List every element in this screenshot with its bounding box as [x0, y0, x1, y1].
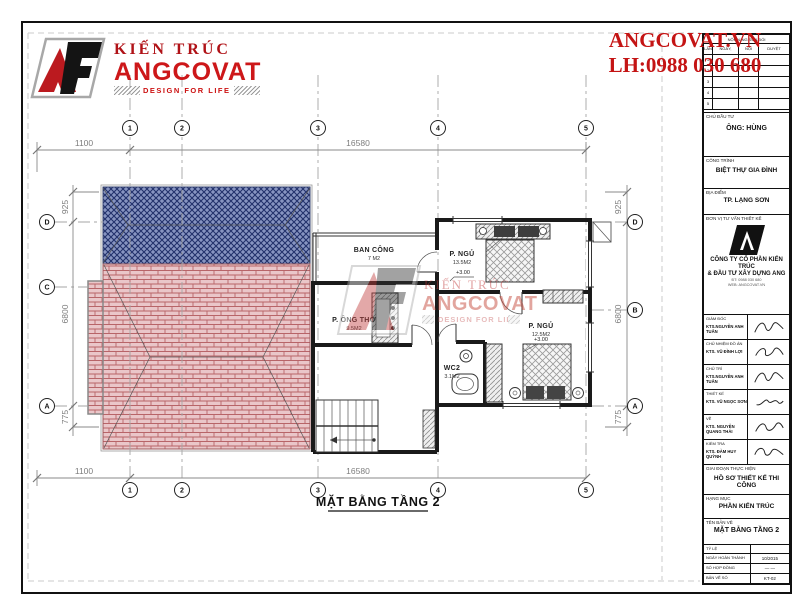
date-label: NGÀY HOÀN THÀNH — [704, 554, 751, 563]
logo-name: ANGCOVAT — [114, 59, 261, 85]
dim-bottom-left: 1100 — [75, 466, 94, 476]
project-section: CÔNG TRÌNH BIỆT THỰ GIA ĐÌNH — [704, 157, 789, 189]
room-bed1-name: P. NGỦ — [449, 249, 474, 258]
stage-section: GIAI ĐOẠN THỰC HIỆN HỒ SƠ THIẾT KẾ THI C… — [704, 465, 789, 495]
grid-col-2: 2 — [180, 126, 184, 133]
dimension-top: 1100 16580 — [33, 138, 590, 172]
contract-label: SỐ HỢP ĐỒNG — [704, 564, 751, 573]
wardrobe-top — [476, 224, 550, 239]
dim-left-mid: 6800 — [60, 304, 70, 323]
sig-name: KTS. NGUYỄN QUANG THÁI — [706, 424, 747, 434]
dim-top-left: 1100 — [75, 138, 94, 148]
location-value: TP. LẠNG SƠN — [704, 197, 789, 204]
dim-top-span: 16580 — [346, 138, 370, 148]
owner-value: ÔNG: HÙNG — [704, 125, 789, 132]
room-bed1-area: 13.5M2 — [453, 260, 471, 266]
signature-row-supervisor: CHỦ TRÌ KTS.NGUYỄN ANH TUẤN — [704, 365, 789, 390]
category-section: HẠNG MỤC PHẦN KIẾN TRÚC — [704, 495, 789, 519]
grid-col-2b: 2 — [180, 488, 184, 495]
room-balcony-name: BAN CÔNG — [354, 245, 395, 254]
grid-row-right-3: A — [632, 404, 637, 411]
grid-col-5b: 5 — [584, 488, 588, 495]
dim-right-top: 925 — [613, 200, 623, 214]
signature-row-checker: KIỂM TRA KTS. ĐÀM HUY QUỲNH — [704, 440, 789, 464]
watermark-line2: ANGCOVAT — [422, 293, 537, 315]
grid-row-right-1: D — [632, 220, 637, 227]
grid-row-left-3: A — [44, 404, 49, 411]
roof-blue-tiles — [103, 187, 310, 264]
angcovat-logo-icon — [30, 36, 106, 100]
drawing-label: TÊN BẢN VẼ — [704, 519, 789, 525]
date-value: 10/2015 — [751, 554, 789, 563]
project-value: BIỆT THỰ GIA ĐÌNH — [704, 167, 789, 174]
sig-role: VẼ — [706, 416, 747, 421]
ac-ledge — [593, 222, 611, 242]
room-wc-name: WC2 — [444, 365, 460, 372]
grid-bubbles-top: 1 2 3 4 5 — [123, 121, 594, 136]
consultant-section: ĐƠN VỊ TƯ VẤN THIẾT KẾ CÔNG TY CỔ PHẦN K… — [704, 215, 789, 315]
revision-row-5: 5 — [704, 99, 713, 110]
plan-title-text: MẶT BẰNG TẦNG 2 — [316, 494, 440, 509]
bed-1 — [486, 240, 534, 282]
scale-value — [751, 545, 789, 553]
grid-bubbles-left: D C A — [40, 215, 55, 414]
tagline-stripe-right — [234, 86, 260, 95]
company-logo: KIẾN TRÚC ANGCOVAT DESIGN FOR LIFE — [30, 36, 261, 100]
scale-row: TỶ LỆ — [704, 545, 789, 554]
sig-name: KTS. VŨ ĐÌNH LỢI — [706, 349, 747, 354]
bookshelf — [543, 290, 583, 303]
dim-right-bottom: 775 — [613, 410, 623, 424]
watermark-logo: KIẾN TRÚC ANGCOVAT DESIGN FOR LIFE — [338, 266, 537, 334]
roof-side-strip — [88, 281, 103, 414]
roof-plan — [88, 185, 312, 451]
revision-row-4: 4 — [704, 88, 713, 99]
bed-2 — [510, 344, 584, 400]
grid-col-3: 3 — [316, 126, 320, 133]
wardrobe-closet — [486, 344, 502, 402]
stage-value: HỒ SƠ THIẾT KẾ THI CÔNG — [704, 475, 789, 489]
sig-role: KIỂM TRA — [706, 441, 747, 446]
consultant-label: ĐƠN VỊ TƯ VẤN THIẾT KẾ — [704, 215, 789, 221]
grid-col-3b: 3 — [316, 488, 320, 495]
wc-fixtures — [452, 350, 478, 394]
signature-row-designer: THIẾT KẾ KTS. VŨ NGỌC SƠN — [704, 390, 789, 415]
location-section: ĐỊA ĐIỂM TP. LẠNG SƠN — [704, 189, 789, 215]
consultant-logo-icon — [727, 223, 767, 257]
signature-ink — [748, 390, 789, 414]
grid-col-5: 5 — [584, 126, 588, 133]
scale-label: TỶ LỆ — [704, 545, 751, 553]
sig-name: KTS.NGUYỄN ANH TUẤN — [706, 324, 747, 334]
contract-value: — — — [751, 564, 789, 573]
signature-row-drafter: VẼ KTS. NGUYỄN QUANG THÁI — [704, 415, 789, 440]
signature-rows: GIÁM ĐỐC KTS.NGUYỄN ANH TUẤN CHỦ NHIỆM Đ… — [704, 315, 789, 465]
grid-row-left-2: C — [44, 285, 49, 292]
grid-col-1: 1 — [128, 126, 132, 133]
room-bed1-level: +3.00 — [456, 270, 470, 276]
logo-title: KIẾN TRÚC — [114, 41, 261, 59]
hall-shelf — [423, 410, 435, 448]
signature-ink — [748, 440, 789, 464]
project-label: CÔNG TRÌNH — [704, 157, 789, 163]
signature-ink — [748, 415, 789, 439]
location-label: ĐỊA ĐIỂM — [704, 189, 789, 195]
dim-bottom-span: 16580 — [346, 466, 370, 476]
watermark-line3: DESIGN FOR LIFE — [438, 315, 518, 324]
room-wc-area: 3.1M2 — [444, 374, 459, 380]
dim-left-top: 925 — [60, 200, 70, 214]
room-bed2-level: +3.00 — [534, 337, 548, 343]
grid-row-left-1: D — [44, 220, 49, 227]
revision-row-3: 3 — [704, 77, 713, 88]
owner-label: CHỦ ĐẦU TƯ — [704, 113, 789, 119]
grid-row-right-2: B — [632, 308, 637, 315]
date-row: NGÀY HOÀN THÀNH 10/2015 — [704, 554, 789, 564]
signature-ink — [748, 315, 789, 339]
furniture — [372, 222, 611, 448]
website-text: ANGCOVAT.VN — [580, 28, 790, 53]
grid-col-4: 4 — [436, 126, 440, 133]
sig-name: KTS.NGUYỄN ANH TUẤN — [706, 374, 747, 384]
contact-banner: ANGCOVAT.VN LH:0988 030 680 — [580, 28, 790, 78]
room-bed2-name: P. NGỦ — [528, 321, 553, 330]
company-name-line2: & ĐẦU TƯ XÂY DỰNG ANG — [704, 271, 789, 278]
sig-role: GIÁM ĐỐC — [706, 316, 747, 321]
sheet-number-label: BẢN VẼ SỐ — [704, 574, 751, 583]
tagline-stripe-left — [114, 86, 140, 95]
phone-text: LH:0988 030 680 — [580, 53, 790, 78]
signature-row-director: GIÁM ĐỐC KTS.NGUYỄN ANH TUẤN — [704, 315, 789, 340]
sheet-number-value: KT-02 — [751, 574, 789, 583]
staircase — [316, 400, 378, 452]
signature-row-project-lead: CHỦ NHIỆM ĐỒ ÁN KTS. VŨ ĐÌNH LỢI — [704, 340, 789, 365]
title-block: NỘI DUNG SỬA ĐỔI LẦN NGÀY, THÁNG NỘI DUN… — [702, 33, 791, 585]
grid-bubbles-right: D B A — [628, 215, 643, 414]
contract-row: SỐ HỢP ĐỒNG — — — [704, 564, 789, 574]
grid-col-4b: 4 — [436, 488, 440, 495]
plan-title: MẶT BẰNG TẦNG 2 — [316, 494, 440, 511]
dim-left-bottom: 775 — [60, 410, 70, 424]
sig-name: KTS. ĐÀM HUY QUỲNH — [706, 449, 747, 459]
roof-pink-tiles — [103, 264, 310, 449]
watermark-line1: KIẾN TRÚC — [424, 277, 511, 292]
dimension-bottom: 1100 16580 — [33, 466, 590, 486]
owner-section: CHỦ ĐẦU TƯ ÔNG: HÙNG — [704, 113, 789, 157]
sig-name: KTS. VŨ NGỌC SƠN — [706, 399, 747, 404]
dim-right-mid: 6800 — [613, 304, 623, 323]
signature-ink — [748, 340, 789, 364]
category-value: PHẦN KIẾN TRÚC — [704, 503, 789, 510]
category-label: HẠNG MỤC — [704, 495, 789, 501]
grid-col-1b: 1 — [128, 488, 132, 495]
signature-ink — [748, 365, 789, 389]
sig-role: CHỦ NHIỆM ĐỒ ÁN — [706, 341, 747, 346]
stage-label: GIAI ĐOẠN THỰC HIỆN — [704, 465, 789, 471]
drawing-name-section: TÊN BẢN VẼ MẶT BẰNG TẦNG 2 — [704, 519, 789, 545]
drawing-value: MẶT BẰNG TẦNG 2 — [704, 527, 789, 534]
company-name-line1: CÔNG TY CỔ PHẦN KIẾN TRÚC — [704, 257, 789, 271]
room-balcony-area: 7 M2 — [368, 256, 380, 262]
drawing-meta-table: TỶ LỆ NGÀY HOÀN THÀNH 10/2015 SỐ HỢP ĐỒN… — [704, 545, 789, 583]
sig-role: THIẾT KẾ — [706, 391, 747, 396]
logo-tagline: DESIGN FOR LIFE — [143, 86, 231, 95]
company-web: WEB: ANGCOVAT.VN — [704, 283, 789, 288]
sheet-number-row: BẢN VẼ SỐ KT-02 — [704, 574, 789, 583]
sig-role: CHỦ TRÌ — [706, 366, 747, 371]
